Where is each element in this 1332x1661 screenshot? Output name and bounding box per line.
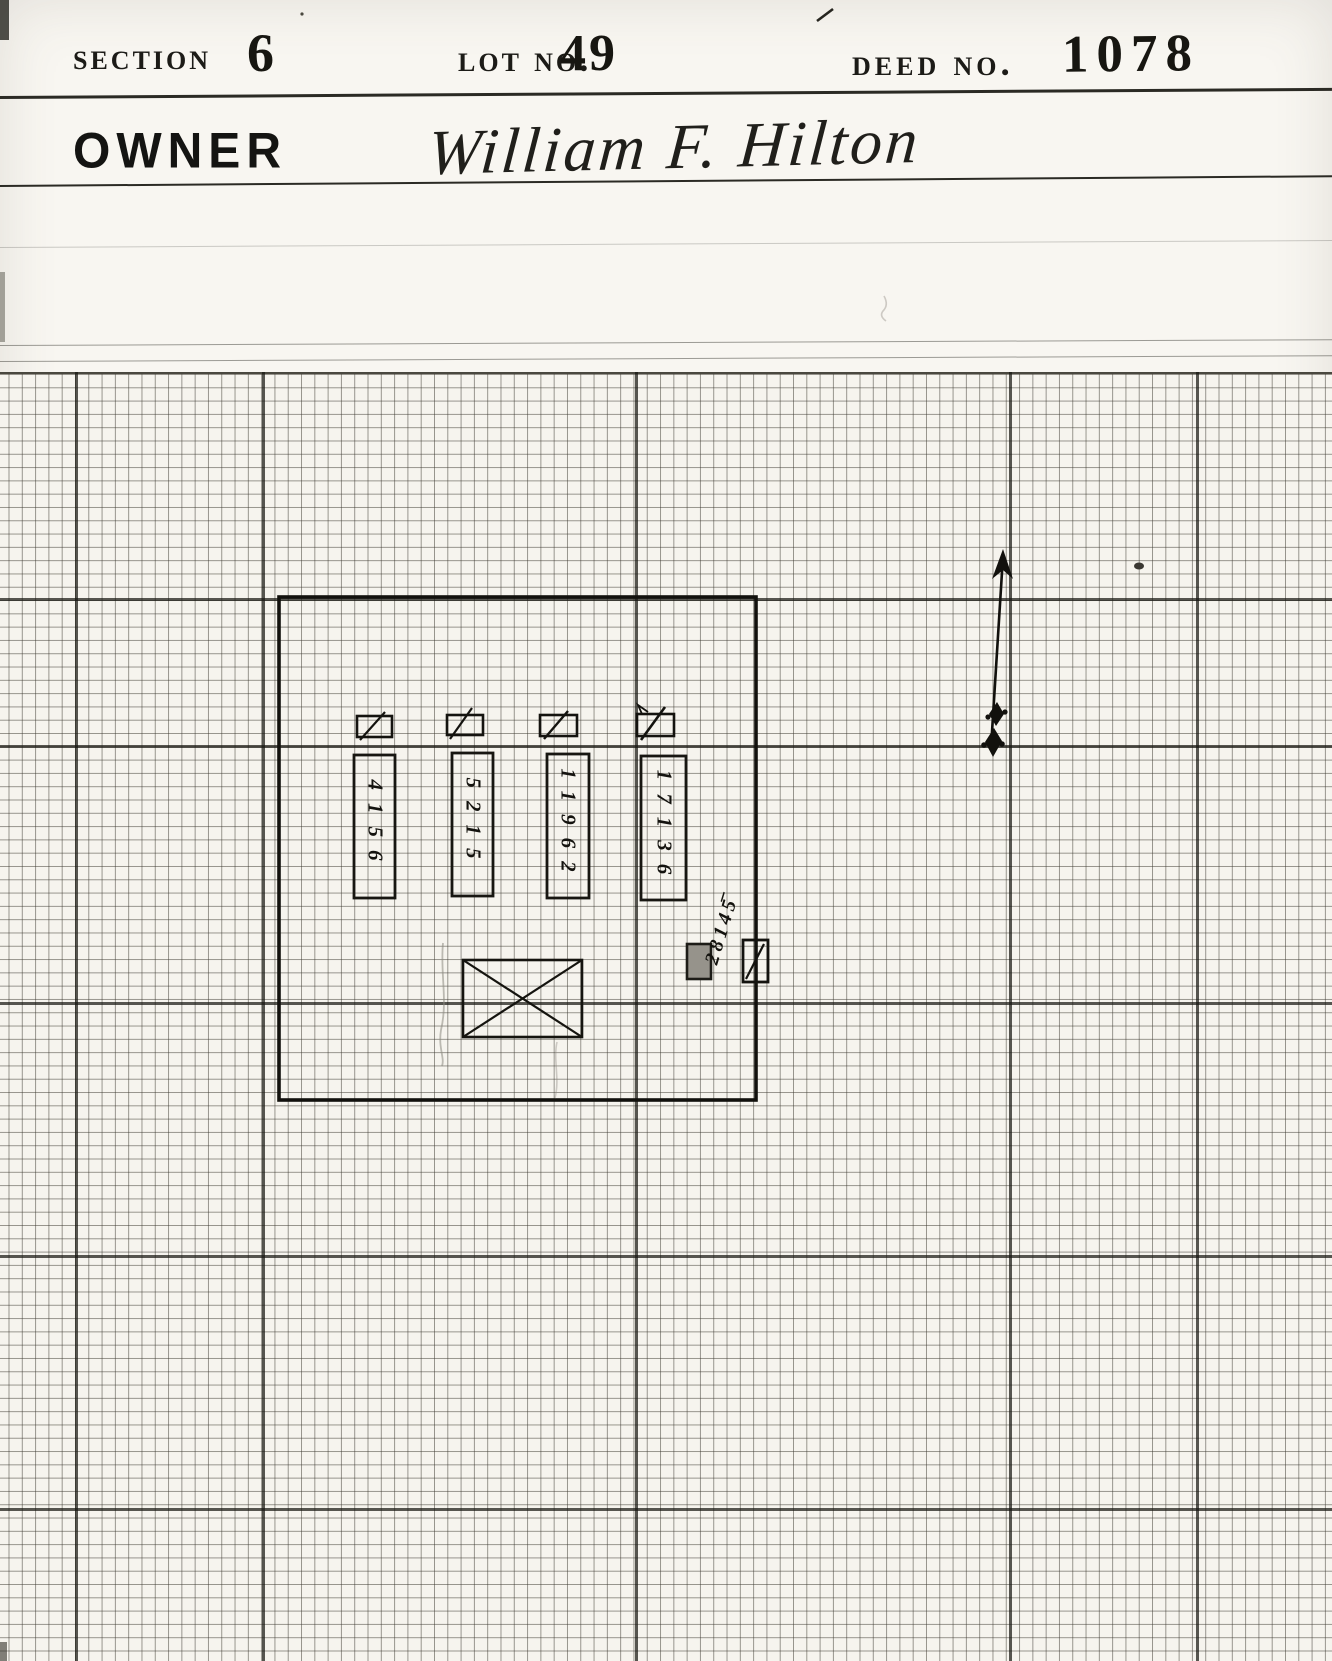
- headstone-marker-2: [447, 708, 483, 739]
- monument-x-box: [463, 960, 582, 1037]
- scan-artifact: [817, 9, 833, 21]
- interment-number-2: 5215: [452, 753, 493, 896]
- pencil-squiggle: [882, 296, 887, 321]
- headstone-marker-1: [357, 712, 392, 740]
- interment-number-3: 11962: [547, 754, 589, 898]
- scan-artifact: [0, 0, 9, 40]
- headstone-marker-3: [540, 711, 577, 739]
- scan-artifact: [0, 1642, 7, 1661]
- headstone-marker-4: [637, 705, 674, 740]
- interment-number-4: 17136: [641, 756, 686, 900]
- scan-artifact: [0, 272, 5, 342]
- pencil-squiggle: [440, 943, 444, 1066]
- scan-artifact: [1134, 563, 1144, 570]
- pencil-squiggle: [555, 1042, 557, 1098]
- interment-number-1: 4156: [354, 755, 395, 898]
- cemetery-lot-card: Section 6 Lot No. 49 Deed No. 1078 OWNER…: [0, 0, 1332, 1661]
- scan-artifact: [300, 12, 303, 15]
- interment-number-5: 28145̅: [690, 878, 754, 982]
- north-arrow-icon: [981, 549, 1013, 757]
